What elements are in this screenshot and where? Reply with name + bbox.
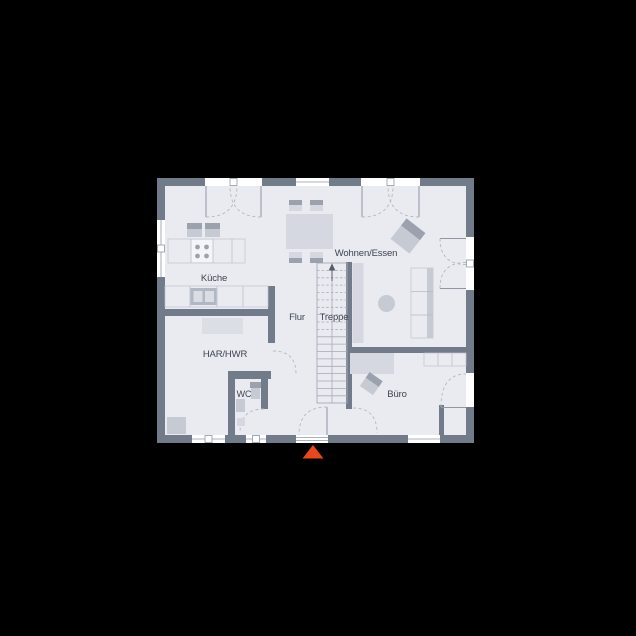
floor-plan: Küche Wohnen/Essen Flur Treppe HAR/HWR W… (0, 0, 636, 636)
window-buero (408, 435, 440, 443)
window-har (192, 435, 225, 443)
door-marker (230, 179, 237, 186)
window-marker (205, 436, 212, 443)
room-label-wohnen-essen: Wohnen/Essen (335, 248, 397, 259)
interior-wall-stub (439, 405, 444, 435)
stove-burner (195, 254, 200, 259)
dining-table (286, 214, 333, 249)
stove-burner (204, 254, 209, 259)
interior-wall-wc-left (228, 371, 235, 435)
door-band (466, 373, 474, 407)
window-top (296, 178, 329, 186)
coffee-table (378, 295, 395, 312)
dining-chair-back (310, 258, 323, 263)
toilet-bowl (251, 388, 260, 399)
dining-chair-back (289, 258, 302, 263)
room-label-treppe: Treppe (320, 312, 349, 323)
toilet-tank (250, 382, 261, 388)
har-appliance (202, 318, 243, 334)
stove-burner (195, 245, 200, 250)
interior-wall-buero (346, 347, 466, 353)
interior-wall-wc-right (261, 371, 268, 409)
door-band (296, 435, 328, 443)
interior-wall-kitchen-har (157, 309, 275, 316)
door-marker (467, 260, 474, 267)
sideboard-stairwell (353, 263, 364, 343)
room-label-flur: Flur (289, 312, 305, 323)
sink-basin (194, 291, 203, 302)
appliance-top (205, 223, 220, 229)
wc-small-unit (237, 418, 245, 426)
stove (192, 240, 213, 262)
har-corner-unit (167, 417, 186, 434)
wc-toilet (250, 382, 261, 399)
entrance-marker-icon (303, 445, 324, 459)
desk (350, 353, 394, 374)
appliance-top (187, 223, 202, 229)
room-label-buero: Büro (387, 389, 406, 400)
wc-sink (236, 399, 245, 412)
room-label-kueche: Küche (201, 273, 227, 284)
canvas: Küche Wohnen/Essen Flur Treppe HAR/HWR W… (0, 0, 636, 636)
door-marker (387, 179, 394, 186)
dining-chair-back (310, 200, 323, 205)
window-marker (158, 245, 165, 252)
sink-basin (205, 291, 214, 302)
sofa-back (427, 268, 433, 338)
window-marker (253, 436, 260, 443)
room-label-har-hwr: HAR/HWR (203, 349, 248, 360)
stove-burner (204, 245, 209, 250)
window-left (157, 220, 165, 277)
window-wc (246, 435, 266, 443)
interior-wall-flur (268, 286, 275, 343)
room-label-wc: WC (237, 389, 252, 399)
dining-chair-back (289, 200, 302, 205)
